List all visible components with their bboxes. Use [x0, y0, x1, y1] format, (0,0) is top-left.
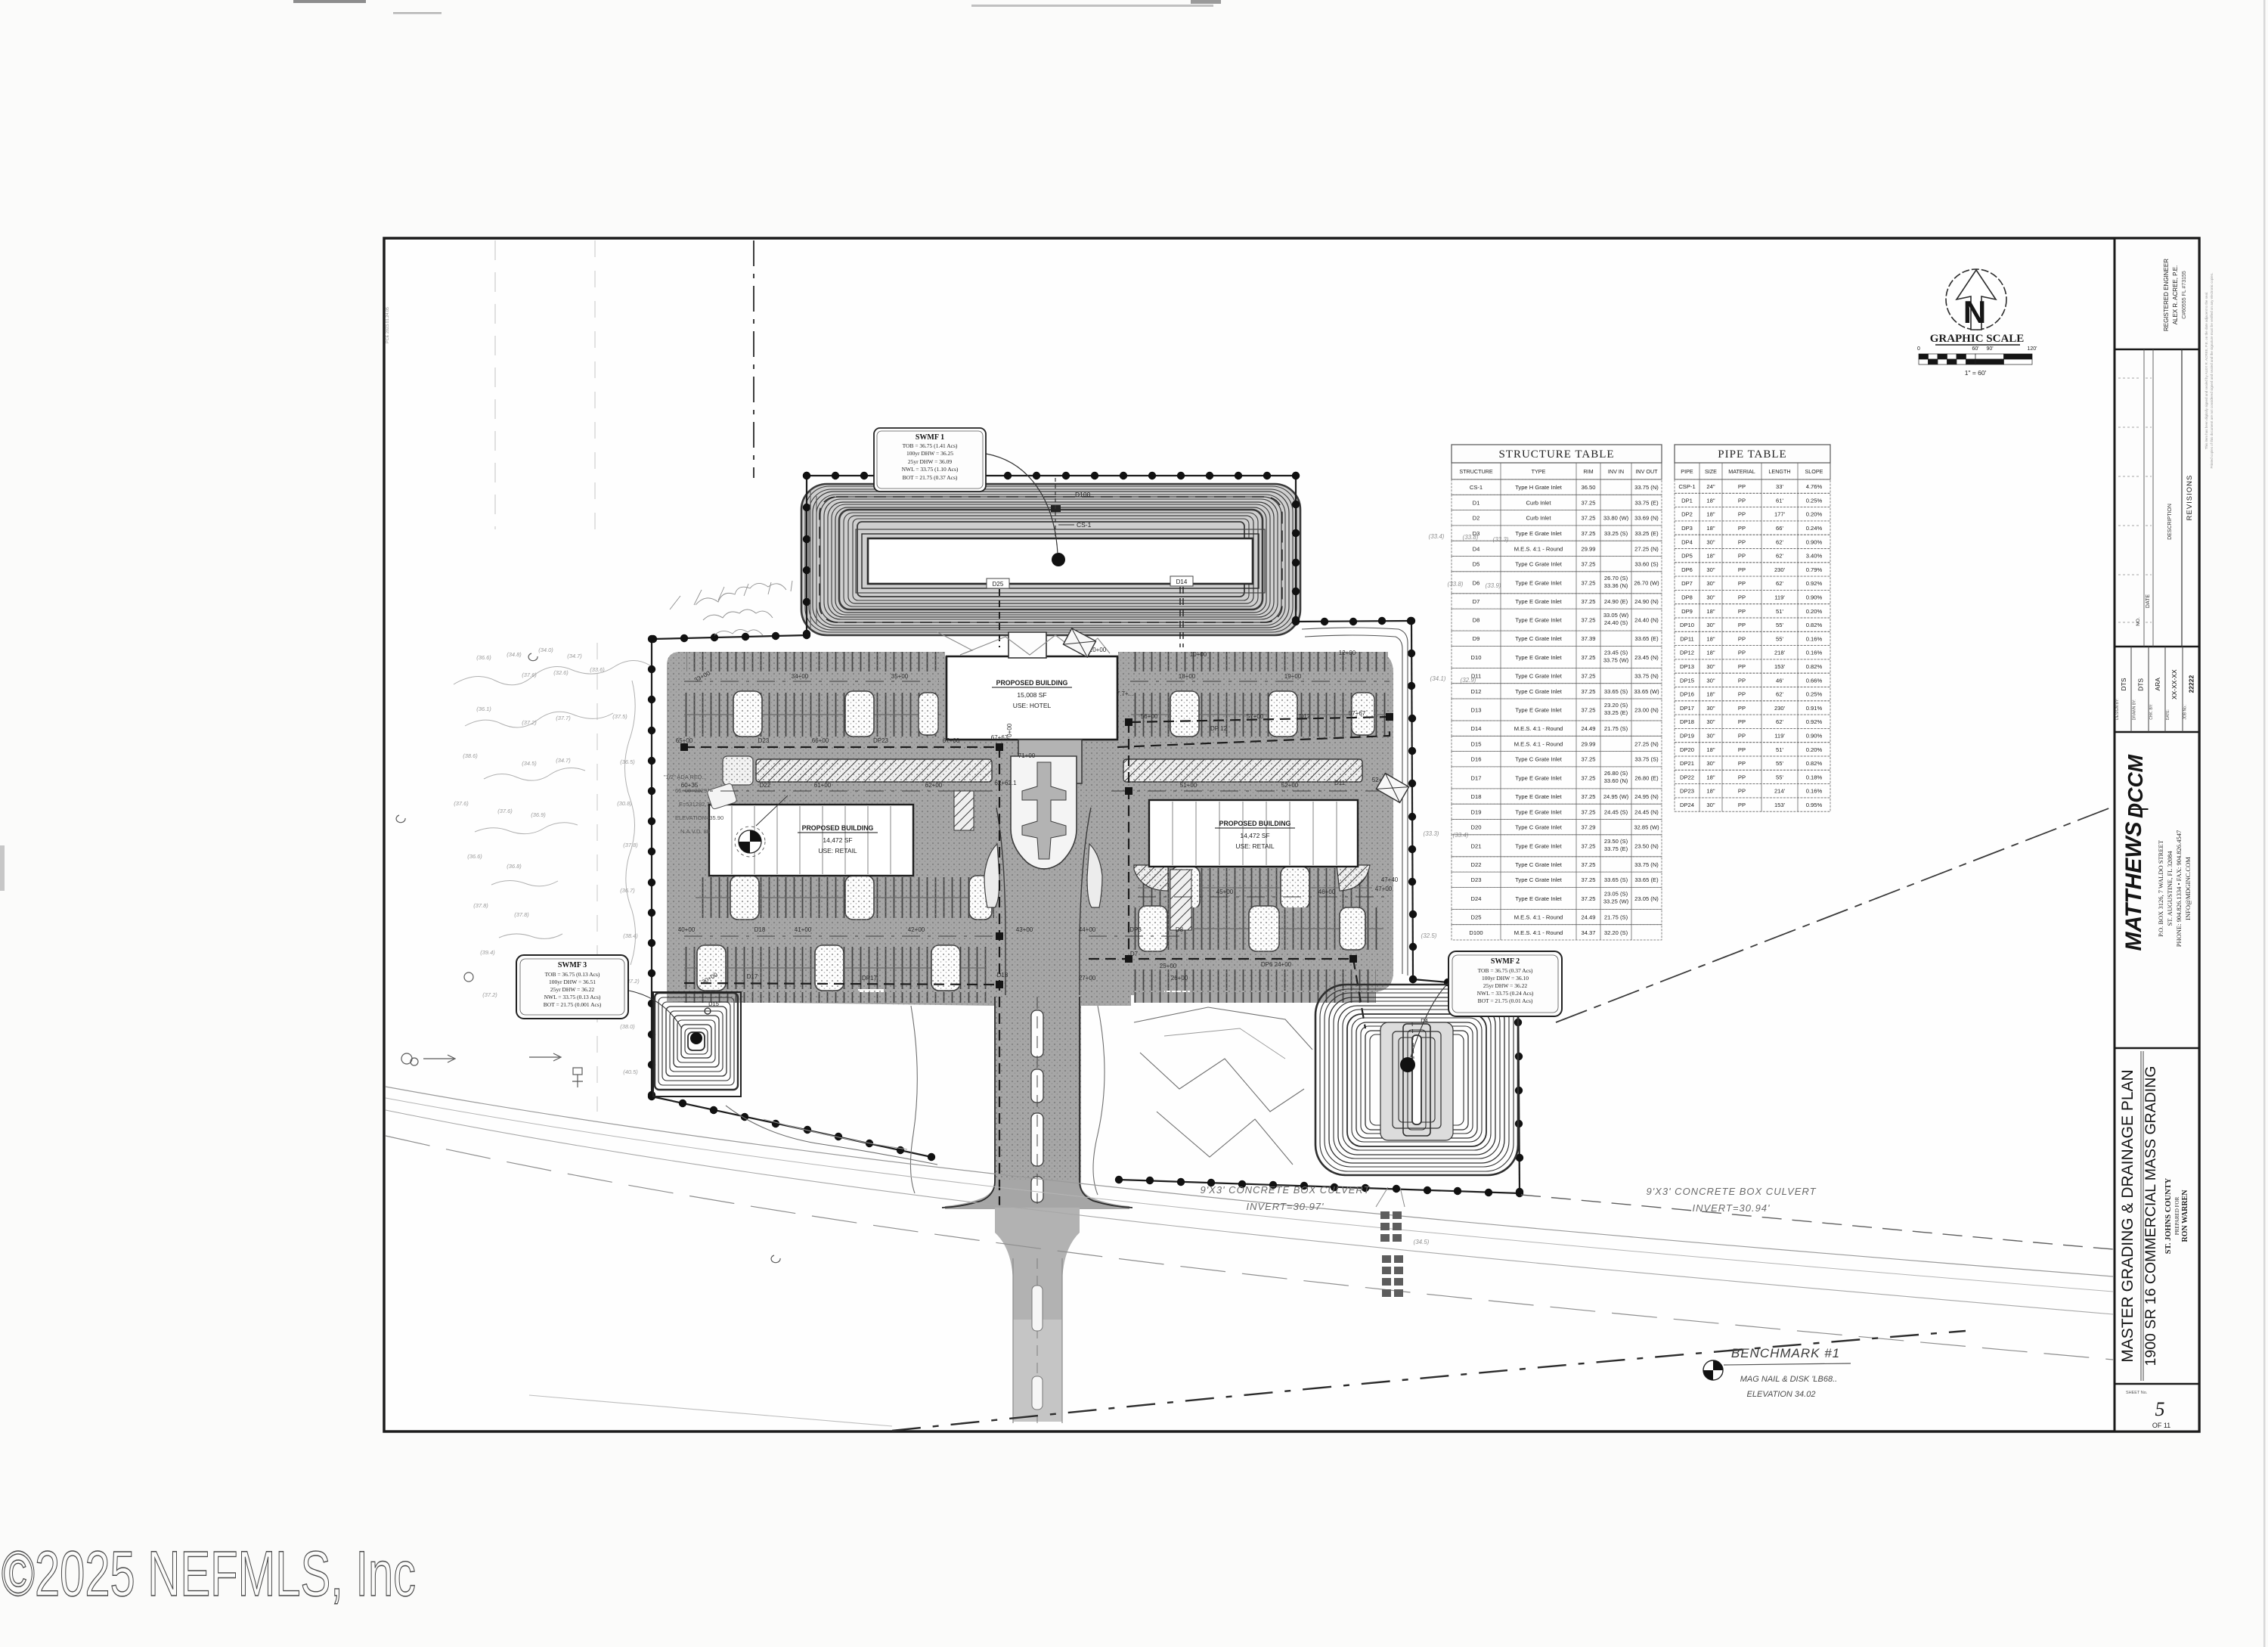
svg-text:(37.6): (37.6)	[497, 808, 513, 814]
svg-text:27.25 (N): 27.25 (N)	[1634, 545, 1659, 552]
svg-text:MAG NAIL & DISK 'LB68..: MAG NAIL & DISK 'LB68..	[1740, 1375, 1837, 1384]
svg-text:PP: PP	[1738, 691, 1746, 698]
svg-text:MASTER GRADING & DRAINAGE PLAN: MASTER GRADING & DRAINAGE PLAN	[2119, 1069, 2136, 1362]
svg-text:DATE:: DATE:	[2166, 709, 2170, 720]
svg-text:D22: D22	[1471, 861, 1482, 868]
svg-text:M.E.S. 4:1 - Round: M.E.S. 4:1 - Round	[1514, 725, 1563, 732]
svg-text:5: 5	[2155, 1398, 2165, 1420]
svg-text:MATTHEWS: MATTHEWS	[2121, 821, 2146, 951]
svg-text:18+00: 18+00	[1179, 673, 1196, 680]
svg-text:DP21: DP21	[1680, 760, 1694, 767]
svg-text:24.95 (N): 24.95 (N)	[1634, 793, 1659, 800]
svg-text:DP20: DP20	[1680, 746, 1694, 753]
svg-text:D25: D25	[993, 581, 1004, 588]
svg-text:M.E.S. 4:1 - Round: M.E.S. 4:1 - Round	[1514, 545, 1563, 552]
svg-text:Type E Grate Inlet: Type E Grate Inlet	[1515, 654, 1562, 661]
svg-text:0.25%: 0.25%	[1806, 691, 1823, 698]
svg-text:D12: D12	[1471, 688, 1482, 695]
svg-text:D100: D100	[1075, 491, 1091, 498]
svg-text:23.05 (S): 23.05 (S)	[1604, 890, 1628, 897]
svg-text:33.25 (W): 33.25 (W)	[1603, 898, 1629, 904]
svg-text:18": 18"	[1706, 774, 1715, 780]
svg-text:66': 66'	[1776, 525, 1783, 532]
svg-text:0.92%: 0.92%	[1806, 580, 1823, 587]
svg-text:D16: D16	[1471, 756, 1482, 763]
svg-text:DP19: DP19	[1680, 733, 1694, 740]
svg-text:35+00: 35+00	[891, 673, 909, 680]
svg-text:33.75 (E): 33.75 (E)	[1604, 845, 1628, 852]
svg-text:0.20%: 0.20%	[1806, 746, 1823, 753]
svg-text:0.25%: 0.25%	[1806, 497, 1823, 504]
svg-text:(34.0): (34.0)	[538, 647, 553, 653]
svg-text:Curb Inlet: Curb Inlet	[1526, 515, 1552, 522]
svg-text:45+00: 45+00	[1216, 889, 1234, 895]
svg-text:D11: D11	[1471, 673, 1481, 680]
svg-text:PP: PP	[1738, 746, 1746, 753]
svg-text:33.80 (W): 33.80 (W)	[1603, 515, 1629, 522]
svg-text:REGISTERED ENGINEER: REGISTERED ENGINEER	[2163, 259, 2170, 331]
svg-text:Type E Grate Inlet: Type E Grate Inlet	[1515, 793, 1562, 800]
svg-text:0.16%: 0.16%	[1806, 788, 1823, 795]
svg-text:33.25 (S): 33.25 (S)	[1604, 530, 1628, 537]
svg-text:37.25: 37.25	[1581, 808, 1595, 815]
svg-text:BOT = 21.75 (0.37 Acs): BOT = 21.75 (0.37 Acs)	[903, 474, 958, 481]
svg-text:D11: D11	[1334, 780, 1346, 786]
svg-text:24.45 (S): 24.45 (S)	[1604, 808, 1628, 815]
svg-text:PP: PP	[1738, 483, 1746, 490]
svg-text:15,008 SF: 15,008 SF	[1017, 691, 1046, 699]
svg-text:0.79%: 0.79%	[1806, 566, 1823, 573]
svg-text:D8: D8	[1473, 617, 1480, 624]
svg-text:119': 119'	[1774, 594, 1785, 601]
svg-text:PP: PP	[1738, 608, 1746, 615]
svg-text:(36.5): (36.5)	[620, 758, 635, 765]
svg-text:D4: D4	[1473, 545, 1480, 552]
svg-text:30": 30"	[1706, 733, 1715, 740]
svg-text:(36.8): (36.8)	[507, 863, 522, 870]
svg-text:55': 55'	[1776, 760, 1783, 767]
svg-text:DP8: DP8	[1681, 594, 1693, 601]
svg-text:D17: D17	[747, 973, 758, 980]
svg-text:SIZE: SIZE	[1705, 468, 1717, 475]
svg-text:PP: PP	[1738, 774, 1746, 780]
svg-text:(36.7): (36.7)	[620, 887, 635, 894]
svg-text:PIPE: PIPE	[1681, 468, 1693, 475]
svg-text:DP13: DP13	[1680, 663, 1694, 670]
svg-text:DP3: DP3	[1129, 926, 1142, 933]
svg-text:37.25: 37.25	[1581, 579, 1595, 586]
svg-text:37.39: 37.39	[1581, 635, 1595, 642]
svg-text:3.40%: 3.40%	[1806, 553, 1823, 560]
svg-text:33.65 (E): 33.65 (E)	[1634, 635, 1659, 642]
svg-text:D18: D18	[997, 972, 1009, 979]
svg-text:D15: D15	[708, 1000, 719, 1007]
svg-text:DP22: DP22	[1680, 774, 1694, 780]
svg-text:D21: D21	[1471, 842, 1482, 849]
svg-text:D15: D15	[1471, 740, 1482, 747]
svg-text:DP2: DP2	[1681, 511, 1693, 518]
svg-text:Type C Grate Inlet: Type C Grate Inlet	[1515, 635, 1563, 642]
svg-text:57+67: 57+67	[1349, 710, 1366, 717]
svg-text:33.60 (S): 33.60 (S)	[1634, 561, 1659, 568]
svg-text:33': 33'	[1776, 483, 1783, 490]
svg-text:37.25: 37.25	[1581, 707, 1595, 714]
svg-text:DP5: DP5	[1681, 553, 1693, 560]
svg-text:23.45 (S): 23.45 (S)	[1604, 649, 1628, 656]
svg-text:Type C Grate Inlet: Type C Grate Inlet	[1515, 876, 1563, 883]
svg-text:D2: D2	[1473, 515, 1480, 522]
svg-text:153': 153'	[1774, 663, 1786, 670]
svg-text:"1/2" ADA RED...: "1/2" ADA RED...	[664, 774, 707, 780]
svg-text:25+00: 25+00	[1160, 963, 1177, 969]
svg-text:D25: D25	[1471, 914, 1482, 921]
svg-text:(37.7): (37.7)	[556, 715, 571, 721]
svg-text:(37.8): (37.8)	[514, 911, 529, 918]
svg-text:JOB No.:: JOB No.:	[2183, 704, 2188, 719]
svg-text:GRAPHIC SCALE: GRAPHIC SCALE	[1930, 333, 2025, 345]
svg-text:27+00: 27+00	[1079, 975, 1096, 982]
svg-text:29.99: 29.99	[1581, 740, 1595, 747]
svg-text:0.24%: 0.24%	[1806, 525, 1823, 532]
svg-text:218': 218'	[1774, 650, 1786, 656]
svg-text:61+00: 61+00	[814, 782, 832, 789]
svg-text:M.E.S. 4:1 - Round: M.E.S. 4:1 - Round	[1514, 929, 1563, 936]
svg-text:D3: D3	[1473, 530, 1480, 537]
svg-text:(38.4): (38.4)	[623, 932, 638, 939]
svg-text:D23: D23	[1471, 876, 1482, 883]
svg-text:26.80 (S): 26.80 (S)	[1604, 770, 1628, 777]
svg-text:PCE 2023.01.24.05: PCE 2023.01.24.05	[386, 307, 390, 343]
svg-text:43+00: 43+00	[1016, 926, 1033, 933]
svg-text:119': 119'	[1774, 733, 1785, 740]
svg-text:0.20%: 0.20%	[1806, 608, 1823, 615]
svg-text:153': 153'	[1774, 802, 1786, 808]
svg-text:18": 18"	[1706, 525, 1715, 532]
svg-text:24.40 (N): 24.40 (N)	[1634, 617, 1659, 624]
svg-text:OF 11: OF 11	[2152, 1422, 2170, 1429]
svg-text:37.25: 37.25	[1581, 561, 1595, 568]
svg-text:PP: PP	[1738, 718, 1746, 725]
svg-text:62': 62'	[1776, 580, 1783, 587]
svg-text:(34.7): (34.7)	[556, 757, 571, 764]
svg-text:33.75 (N): 33.75 (N)	[1634, 484, 1659, 491]
svg-text:DP1: DP1	[1681, 497, 1693, 504]
svg-text:D6: D6	[1473, 579, 1480, 586]
svg-text:DP17: DP17	[862, 975, 878, 982]
svg-text:D1: D1	[1473, 499, 1480, 506]
svg-text:1" = 60': 1" = 60'	[1965, 369, 1987, 377]
svg-text:PP: PP	[1738, 497, 1746, 504]
svg-text:PP: PP	[1738, 594, 1746, 601]
svg-text:21.75 (S): 21.75 (S)	[1604, 914, 1628, 921]
svg-text:60': 60'	[1972, 346, 1978, 352]
svg-text:DP7: DP7	[1681, 580, 1693, 587]
svg-text:USE: RETAIL: USE: RETAIL	[818, 847, 857, 855]
svg-text:Type C Grate Inlet: Type C Grate Inlet	[1515, 861, 1563, 868]
svg-text:DP23: DP23	[873, 737, 889, 744]
svg-text:4.76%: 4.76%	[1806, 483, 1823, 490]
svg-text:D22: D22	[760, 782, 771, 789]
svg-text:(34.8): (34.8)	[507, 651, 522, 658]
svg-text:1900 SR 16 COMMERCIAL MASS GRA: 1900 SR 16 COMMERCIAL MASS GRADING	[2143, 1066, 2159, 1366]
svg-text:(36.1): (36.1)	[476, 706, 491, 712]
svg-text:NWL = 33.75 (0.24 Acs): NWL = 33.75 (0.24 Acs)	[1477, 990, 1534, 997]
svg-text:Type E Grate Inlet: Type E Grate Inlet	[1515, 895, 1562, 902]
svg-text:Type E Grate Inlet: Type E Grate Inlet	[1515, 808, 1562, 815]
svg-text:0.20%: 0.20%	[1806, 511, 1823, 518]
svg-text:PP: PP	[1738, 635, 1746, 642]
svg-text:BENCHMARK #1: BENCHMARK #1	[1731, 1346, 1840, 1360]
svg-text:Printed copies of this documen: Printed copies of this document are not …	[2210, 273, 2214, 469]
svg-text:(37.6): (37.6)	[522, 672, 537, 678]
svg-text:DP9: DP9	[1681, 608, 1693, 615]
svg-text:(33.6): (33.6)	[590, 666, 605, 673]
svg-text:23.50 (N): 23.50 (N)	[1634, 842, 1659, 849]
svg-text:DP4: DP4	[1681, 538, 1693, 545]
svg-text:57+00: 57+00	[1247, 713, 1264, 720]
svg-text:P.O. BOX 3126, 7 WALDO STREET: P.O. BOX 3126, 7 WALDO STREET	[2157, 839, 2164, 937]
svg-text:37.25: 37.25	[1581, 673, 1595, 680]
svg-text:PP: PP	[1738, 788, 1746, 795]
svg-text:26.70 (S): 26.70 (S)	[1604, 575, 1628, 582]
svg-text:25yr DHW = 36.22: 25yr DHW = 36.22	[550, 986, 595, 993]
svg-text:DESIGN BY:: DESIGN BY:	[2115, 699, 2120, 720]
svg-text:ELEVATION 34.02: ELEVATION 34.02	[1747, 1390, 1816, 1399]
svg-text:24.45 (N): 24.45 (N)	[1634, 808, 1659, 815]
svg-text:DP 12: DP 12	[1210, 725, 1228, 732]
svg-text:18": 18"	[1706, 608, 1715, 615]
svg-text:(33.8): (33.8)	[1448, 581, 1464, 588]
svg-text:18": 18"	[1706, 511, 1715, 518]
svg-text:(34.7): (34.7)	[567, 653, 582, 659]
svg-text:37.25: 37.25	[1581, 774, 1595, 781]
svg-text:D23: D23	[758, 737, 770, 744]
svg-text:Type E Grate Inlet: Type E Grate Inlet	[1515, 579, 1562, 586]
svg-text:65+00: 65+00	[676, 737, 693, 744]
svg-text:DP24: DP24	[1680, 802, 1694, 808]
svg-text:D18: D18	[1471, 793, 1482, 800]
svg-text:37.25: 37.25	[1581, 895, 1595, 902]
svg-text:©2025 NEFMLS, Inc: ©2025 NEFMLS, Inc	[2, 1538, 416, 1609]
svg-text:24": 24"	[1706, 483, 1715, 490]
svg-text:DP3: DP3	[1681, 525, 1693, 532]
svg-text:100yr DHW = 36.25: 100yr DHW = 36.25	[906, 450, 953, 457]
svg-text:DP17: DP17	[1680, 705, 1694, 712]
svg-text:LENGTH: LENGTH	[1768, 468, 1790, 475]
svg-text:TOB = 36.75 (0.37 Acs): TOB = 36.75 (0.37 Acs)	[1478, 967, 1533, 974]
svg-text:(37.2): (37.2)	[522, 719, 537, 726]
svg-text:33.65 (W): 33.65 (W)	[1634, 688, 1659, 695]
svg-text:DP23: DP23	[1680, 788, 1694, 795]
svg-text:PROPOSED BUILDING: PROPOSED BUILDING	[996, 679, 1068, 687]
svg-text:55': 55'	[1776, 774, 1783, 780]
svg-text:PP: PP	[1738, 802, 1746, 808]
svg-text:66+00: 66+00	[812, 737, 829, 744]
svg-text:USE: RETAIL: USE: RETAIL	[1235, 842, 1275, 850]
svg-text:0.18%: 0.18%	[1806, 774, 1823, 780]
svg-text:Type E Grate Inlet: Type E Grate Inlet	[1515, 842, 1562, 849]
svg-text:9'X3' CONCRETE BOX CULVERT: 9'X3' CONCRETE BOX CULVERT	[1200, 1184, 1370, 1196]
svg-text:Type E Grate Inlet: Type E Grate Inlet	[1515, 598, 1562, 605]
svg-text:PP: PP	[1738, 663, 1746, 670]
svg-text:PP: PP	[1738, 760, 1746, 767]
svg-text:34+00: 34+00	[792, 673, 809, 680]
svg-text:DP11: DP11	[1680, 635, 1693, 642]
svg-text:This item has been digitally s: This item has been digitally signed and …	[2204, 292, 2208, 450]
svg-text:30": 30"	[1706, 538, 1715, 545]
svg-text:(34.1): (34.1)	[1430, 675, 1446, 682]
svg-text:SLOPE: SLOPE	[1805, 468, 1823, 475]
svg-text:Type C Grate Inlet: Type C Grate Inlet	[1515, 561, 1563, 568]
svg-text:INV OUT: INV OUT	[1635, 468, 1658, 475]
svg-text:51+00: 51+00	[1180, 782, 1198, 789]
svg-text:(33.3): (33.3)	[1424, 830, 1439, 837]
svg-text:37.25: 37.25	[1581, 876, 1595, 883]
svg-text:33.65 (S): 33.65 (S)	[1604, 876, 1628, 883]
svg-text:71+00: 71+00	[1018, 752, 1036, 759]
svg-text:NWL = 33.75 (1.10 Acs): NWL = 33.75 (1.10 Acs)	[902, 466, 959, 473]
svg-text:22222: 22222	[2188, 675, 2195, 693]
svg-text:36.50: 36.50	[1581, 484, 1595, 491]
svg-text:D20: D20	[1471, 824, 1482, 831]
svg-text:(32.6): (32.6)	[553, 669, 569, 676]
svg-text:30": 30"	[1706, 580, 1715, 587]
svg-text:37.25: 37.25	[1581, 499, 1595, 506]
svg-text:(37.6): (37.6)	[454, 800, 469, 807]
svg-text:DP15: DP15	[1680, 677, 1694, 684]
svg-text:24.49: 24.49	[1581, 914, 1595, 921]
svg-text:37.25: 37.25	[1581, 530, 1595, 537]
svg-text:0.16%: 0.16%	[1806, 650, 1823, 656]
svg-text:(37.2): (37.2)	[482, 991, 497, 998]
svg-text:62+00: 62+00	[925, 782, 943, 789]
svg-text:29.99: 29.99	[1581, 545, 1595, 552]
svg-text:18": 18"	[1706, 635, 1715, 642]
svg-text:D13: D13	[1471, 707, 1482, 714]
svg-text:230': 230'	[1774, 705, 1786, 712]
svg-text:27.25 (N): 27.25 (N)	[1634, 740, 1659, 747]
svg-text:RON WARREN: RON WARREN	[2181, 1189, 2189, 1242]
svg-text:D14: D14	[1176, 578, 1188, 585]
svg-text:(39.4): (39.4)	[480, 949, 495, 956]
svg-text:Curb Inlet: Curb Inlet	[1526, 499, 1552, 506]
svg-text:47+40: 47+40	[1381, 876, 1399, 883]
svg-text:56+00: 56+00	[1141, 713, 1158, 720]
svg-text:47+00: 47+00	[1375, 886, 1393, 892]
svg-text:33.60 (N): 33.60 (N)	[1604, 777, 1628, 784]
svg-text:N: N	[1963, 294, 1986, 330]
svg-text:D18: D18	[754, 926, 766, 933]
svg-text:33.75 (N): 33.75 (N)	[1634, 673, 1659, 680]
svg-text:D5: D5	[1473, 561, 1480, 568]
svg-text:33.25 (E): 33.25 (E)	[1604, 709, 1628, 716]
svg-text:30": 30"	[1706, 760, 1715, 767]
svg-text:37.25: 37.25	[1581, 654, 1595, 661]
svg-text:(33.4): (33.4)	[1453, 832, 1469, 839]
svg-text:33.65 (E): 33.65 (E)	[1634, 876, 1659, 883]
svg-text:(37.5): (37.5)	[612, 713, 627, 720]
svg-text:PP: PP	[1738, 566, 1746, 573]
svg-text:40+00: 40+00	[678, 926, 696, 933]
svg-text:7.7+...: 7.7+...	[1117, 690, 1133, 697]
svg-text:23.45 (N): 23.45 (N)	[1634, 654, 1659, 661]
svg-text:0.90%: 0.90%	[1806, 594, 1823, 601]
svg-text:100yr DHW = 36.51: 100yr DHW = 36.51	[549, 979, 596, 985]
svg-text:62': 62'	[1776, 691, 1783, 698]
svg-text:0.66%: 0.66%	[1806, 677, 1823, 684]
svg-text:37.25: 37.25	[1581, 861, 1595, 868]
svg-text:230': 230'	[1774, 566, 1786, 573]
svg-text:18": 18"	[1706, 553, 1715, 560]
svg-text:PP: PP	[1738, 580, 1746, 587]
svg-text:0.82%: 0.82%	[1806, 760, 1823, 767]
svg-text:18": 18"	[1706, 691, 1715, 698]
svg-text:(30.8): (30.8)	[617, 800, 632, 807]
svg-text:0.92%: 0.92%	[1806, 718, 1823, 725]
svg-text:(34.5): (34.5)	[522, 760, 537, 767]
svg-text:33.65 (S): 33.65 (S)	[1604, 688, 1628, 695]
svg-text:DP16: DP16	[1680, 691, 1694, 698]
svg-text:SHEET No.: SHEET No.	[2126, 1391, 2148, 1395]
svg-text:D12: D12	[1300, 713, 1311, 720]
svg-text:37.25: 37.25	[1581, 617, 1595, 624]
svg-text:N.A.V.D. 88: N.A.V.D. 88	[680, 828, 710, 835]
svg-text:30": 30"	[1706, 566, 1715, 573]
svg-text:(40.5): (40.5)	[623, 1069, 638, 1075]
svg-text:14,472 SF: 14,472 SF	[1240, 832, 1269, 839]
svg-text:TOB = 36.75 (0.13 Acs): TOB = 36.75 (0.13 Acs)	[545, 971, 600, 978]
svg-text:INFO@MDGINC.COM: INFO@MDGINC.COM	[2184, 857, 2192, 920]
svg-text:24.40 (S): 24.40 (S)	[1604, 619, 1628, 626]
svg-text:23.50 (S): 23.50 (S)	[1604, 838, 1628, 845]
svg-text:24.90 (N): 24.90 (N)	[1634, 598, 1659, 605]
svg-text:30": 30"	[1706, 622, 1715, 628]
svg-text:23.05 (N): 23.05 (N)	[1634, 895, 1659, 902]
svg-text:PP: PP	[1738, 511, 1746, 518]
svg-text:PROPOSED BUILDING: PROPOSED BUILDING	[1219, 820, 1291, 827]
svg-text:REVISIONS: REVISIONS	[2186, 475, 2194, 521]
svg-text:TYPE: TYPE	[1532, 468, 1546, 475]
svg-text:DTS: DTS	[2120, 678, 2127, 690]
svg-text:(38.6): (38.6)	[463, 752, 478, 759]
svg-text:(36.6): (36.6)	[467, 853, 482, 860]
svg-text:PP: PP	[1738, 650, 1746, 656]
svg-text:9'X3' CONCRETE BOX CULVERT: 9'X3' CONCRETE BOX CULVERT	[1646, 1186, 1816, 1197]
svg-text:52+00: 52+00	[1281, 782, 1299, 789]
svg-text:USE: HOTEL: USE: HOTEL	[1013, 702, 1052, 709]
svg-text:DTS: DTS	[2136, 678, 2144, 691]
svg-text:30": 30"	[1706, 594, 1715, 601]
svg-text:SWMF 2: SWMF 2	[1491, 957, 1520, 966]
svg-text:62+62.1: 62+62.1	[994, 780, 1017, 786]
svg-text:32.85 (W): 32.85 (W)	[1634, 824, 1659, 831]
svg-text:0.90%: 0.90%	[1806, 733, 1823, 740]
svg-text:51': 51'	[1776, 746, 1783, 753]
svg-text:24.90 (E): 24.90 (E)	[1604, 598, 1628, 605]
svg-text:33.75 (E): 33.75 (E)	[1634, 499, 1659, 506]
svg-text:214': 214'	[1774, 788, 1786, 795]
svg-text:26+00: 26+00	[1171, 975, 1188, 982]
svg-text:D9: D9	[1473, 635, 1480, 642]
svg-text:DP10: DP10	[1680, 622, 1694, 628]
svg-text:CHK. BY:: CHK. BY:	[2149, 704, 2154, 720]
svg-text:37.25: 37.25	[1581, 688, 1595, 695]
svg-text:DP12: DP12	[1680, 650, 1694, 656]
svg-text:30": 30"	[1706, 802, 1715, 808]
svg-text:46+00: 46+00	[1318, 889, 1336, 895]
svg-text:PIPE TABLE: PIPE TABLE	[1718, 448, 1786, 461]
svg-text:(33.9): (33.9)	[1486, 582, 1501, 589]
